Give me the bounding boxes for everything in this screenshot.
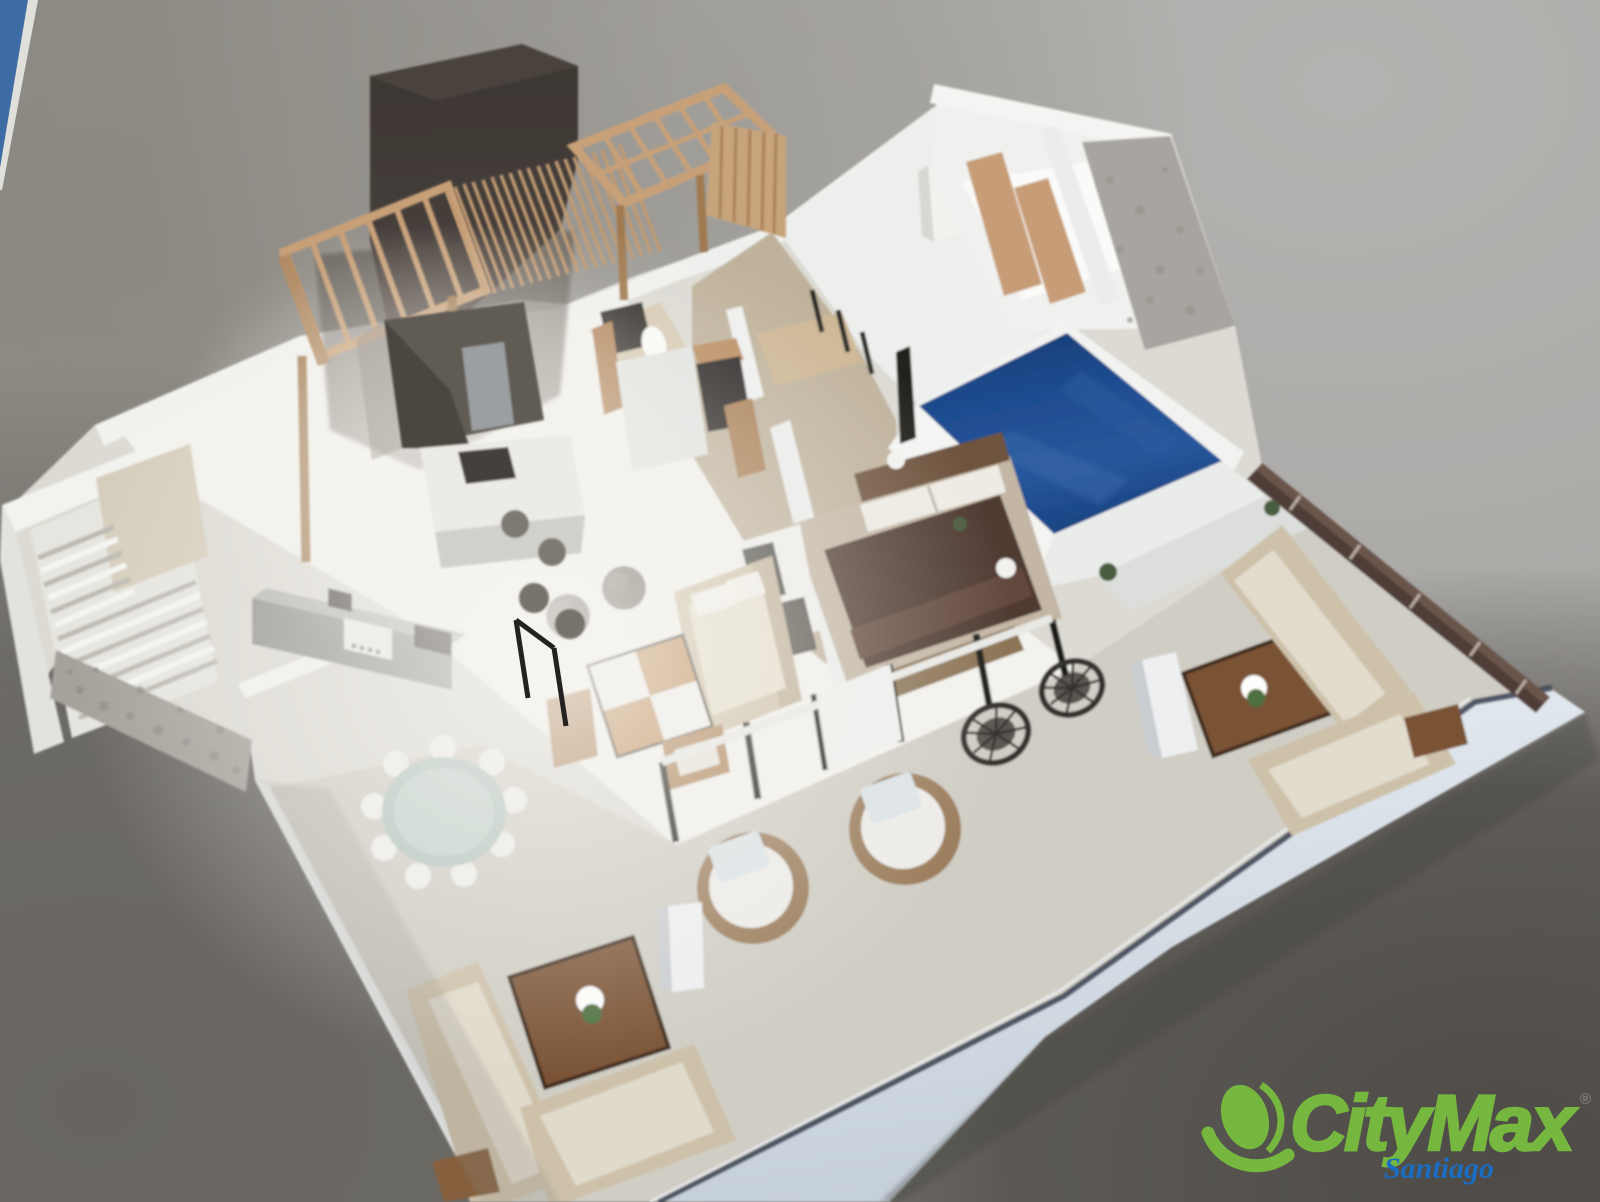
svg-text:®: ® [1580, 1091, 1591, 1108]
svg-text:Santiago: Santiago [1384, 1152, 1494, 1185]
